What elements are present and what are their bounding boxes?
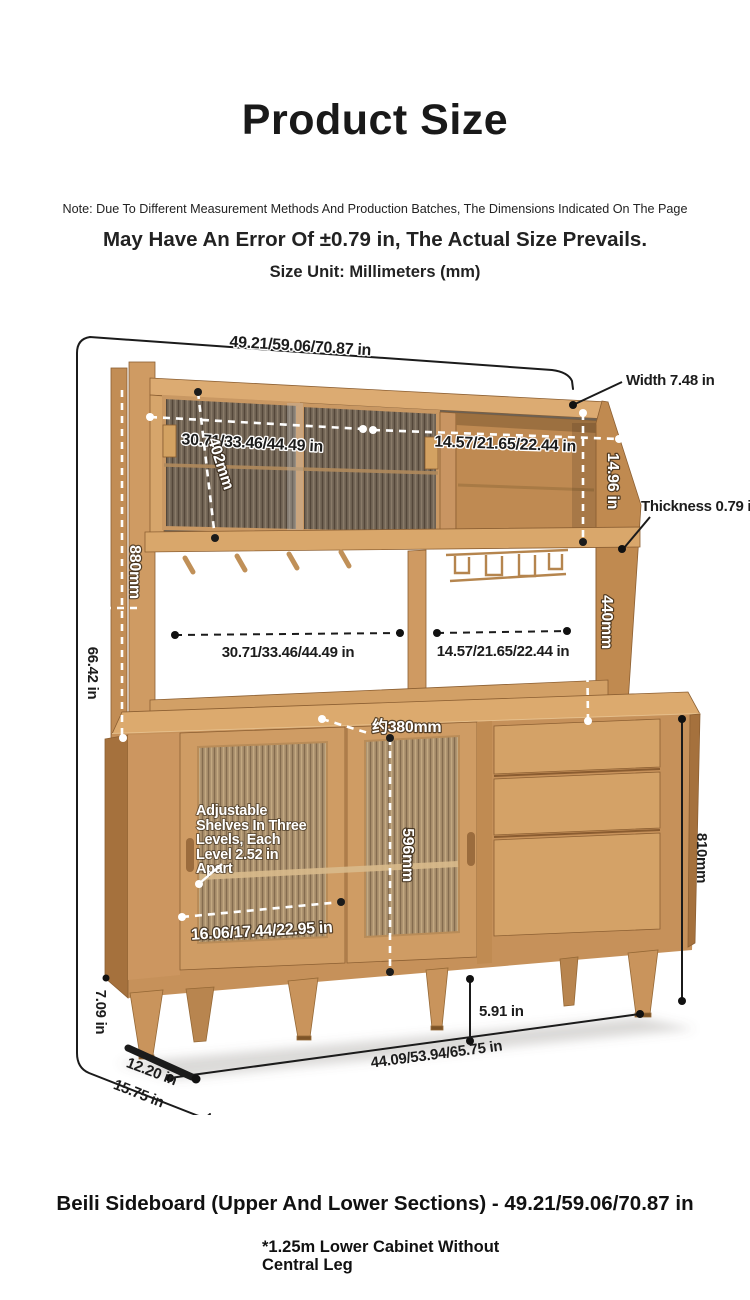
product-title: Beili Sideboard (Upper And Lower Section… [0,1192,750,1216]
top-depth-label: Width 7.48 in [626,372,715,389]
lower-cabinet-left-stile [128,733,180,980]
product-footnote: *1.25m Lower Cabinet Without Central Leg [262,1239,562,1274]
hutch-left-post-outer [111,368,127,740]
open-shelf-height-label: 440mm [598,595,615,649]
drawer-middle [494,772,660,835]
lower-cabinet-right-side [688,714,700,947]
glass-reflection [287,403,303,531]
open-left-width-label: 30.71/33.46/44.49 in [222,644,355,661]
open-right-width-label: 14.57/21.65/22.44 in [437,643,570,660]
dim-dot [386,968,394,976]
lower-door-height-label: 596mm [399,828,416,882]
lower-cabinet-left-side [105,735,128,998]
top-depth-dot [569,401,577,409]
dim-dot [194,388,202,396]
open-shelf-divider [408,550,426,692]
measurement-note: Note: Due To Different Measurement Metho… [0,202,750,216]
lower-cabinet-partition [477,721,492,964]
dim-dot [359,425,367,433]
wine-glass-rack [446,550,568,581]
leg-height-right-label: 5.91 in [479,1003,524,1020]
dim-dot [615,435,623,443]
dim-dot [171,631,179,639]
base-width-line [170,1014,640,1078]
shelf-thickness-label: Thickness 0.79 in [641,498,750,515]
lower-door-right-handle [467,832,475,866]
dim-dot [337,898,345,906]
open-left-width-line [175,633,400,635]
lower-cabinet-height-label: 810mm [693,833,710,883]
counter-depth-label: 约380mm [372,717,441,736]
dim-dot [195,880,203,888]
dim-dot [211,534,219,542]
dim-dot [584,717,592,725]
page-title: Product Size [0,96,750,145]
shelf-note-line: Adjustable [196,803,267,819]
dim-dot [119,734,127,742]
dim-dot [678,997,686,1005]
leg-height-left-label: 7.09 in [92,990,109,1035]
dim-dot [369,426,377,434]
product-size-diagram: 49.21/59.06/70.87 in 66.42 in 15.75 in W… [0,315,750,1115]
dim-dot [396,629,404,637]
dim-dot [192,1075,201,1084]
size-unit-note: Size Unit: Millimeters (mm) [0,263,750,282]
hutch-hook-pegs [185,552,349,572]
dim-dot [582,555,590,563]
footnote-line-1: *1.25m Lower Cabinet Without [262,1238,499,1256]
dim-dot [146,413,154,421]
overall-height-label: 66.42 in [84,647,101,700]
overall-width-label: 49.21/59.06/70.87 in [229,334,371,360]
dim-dot [318,715,326,723]
upper-cabinet-height-label: 14.96 in [604,453,621,509]
upper-door-handle-left [163,425,176,457]
dim-dot [563,627,571,635]
dim-dot [386,734,394,742]
dim-dot [579,538,587,546]
dim-dot [433,629,441,637]
lower-cabinet-right-stile [662,715,690,950]
dim-dot [103,975,110,982]
dim-dot [678,715,686,723]
top-depth-pointer [575,382,622,404]
hutch-height-label: 880mm [126,545,143,599]
dim-dot [466,975,474,983]
drawer-top [494,719,660,774]
dim-dot [178,913,186,921]
dim-dot [579,409,587,417]
shelf-thickness-dot [618,545,626,553]
upper-cabinet-divider [440,412,456,536]
shelf-note-line: Levels, Each [196,832,280,848]
error-tolerance-note: May Have An Error Of ±0.79 in, The Actua… [0,228,750,252]
hutch-right-side-panel [596,401,641,719]
footnote-line-2: Central Leg [262,1256,353,1274]
open-right-width-line [437,631,567,633]
dim-dot [636,1010,644,1018]
lower-door-left-handle [186,838,194,872]
drawer-bottom [494,833,660,936]
